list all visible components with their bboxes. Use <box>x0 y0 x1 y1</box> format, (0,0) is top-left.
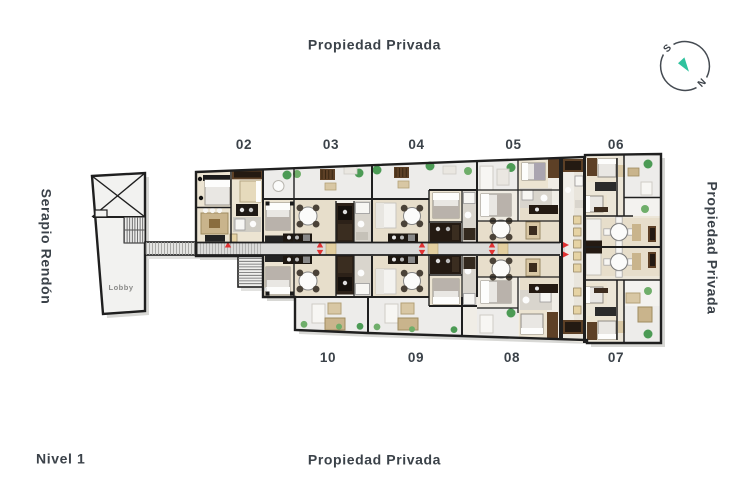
svg-text:09: 09 <box>408 350 424 365</box>
svg-text:S: S <box>661 42 674 55</box>
svg-text:Propiedad Privada: Propiedad Privada <box>705 181 721 314</box>
svg-text:04: 04 <box>408 137 424 152</box>
svg-text:10: 10 <box>320 350 336 365</box>
svg-text:02: 02 <box>236 137 252 152</box>
svg-text:08: 08 <box>504 350 520 365</box>
svg-text:Nivel 1: Nivel 1 <box>36 451 85 467</box>
svg-text:Propiedad Privada: Propiedad Privada <box>308 37 441 53</box>
svg-text:N: N <box>696 77 709 90</box>
svg-text:05: 05 <box>505 137 521 152</box>
svg-text:Lobby: Lobby <box>109 283 134 292</box>
svg-text:03: 03 <box>323 137 339 152</box>
svg-text:Serapio Rendón: Serapio Rendón <box>39 189 55 305</box>
svg-text:07: 07 <box>608 350 624 365</box>
svg-text:06: 06 <box>608 137 624 152</box>
svg-text:Propiedad Privada: Propiedad Privada <box>308 452 441 468</box>
